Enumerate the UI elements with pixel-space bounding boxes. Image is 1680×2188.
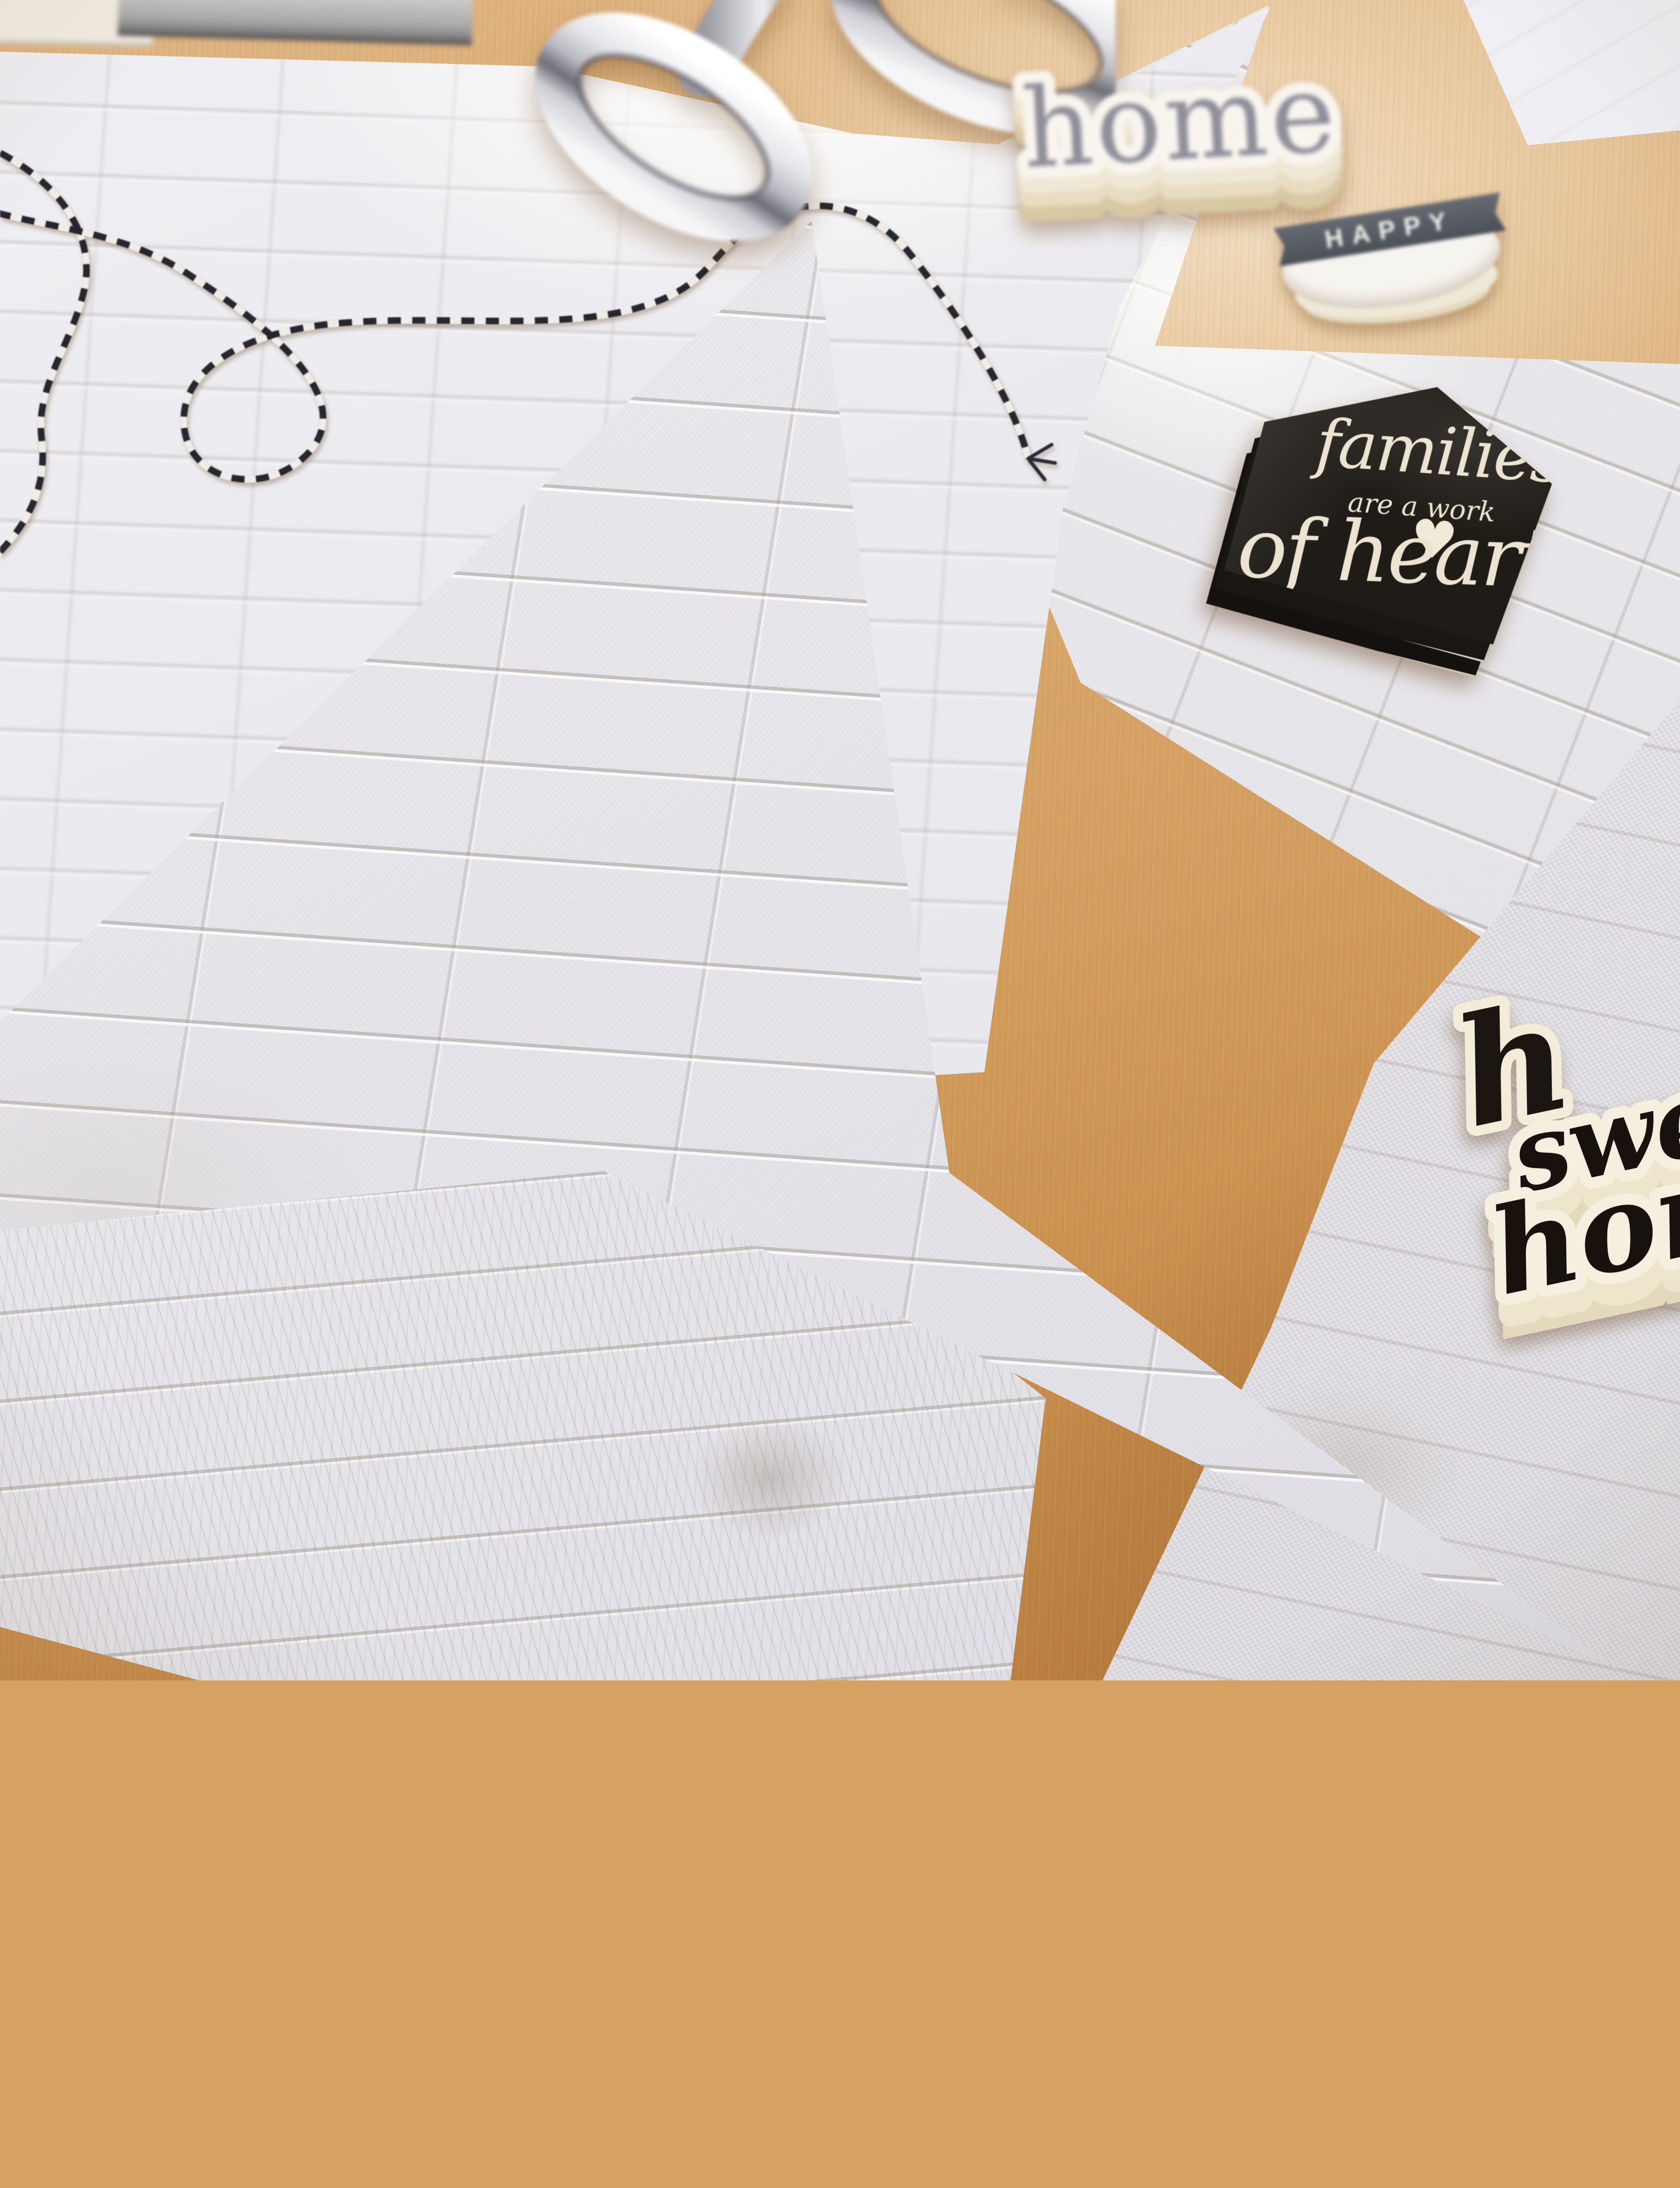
scissors-handle-left (525, 0, 822, 254)
families-line-1: families (1313, 405, 1565, 498)
home-text: home (1019, 49, 1341, 193)
happy-diecut-stack: HAPPY HAPPY (1268, 184, 1518, 337)
twine-frayed-end (1028, 445, 1055, 480)
